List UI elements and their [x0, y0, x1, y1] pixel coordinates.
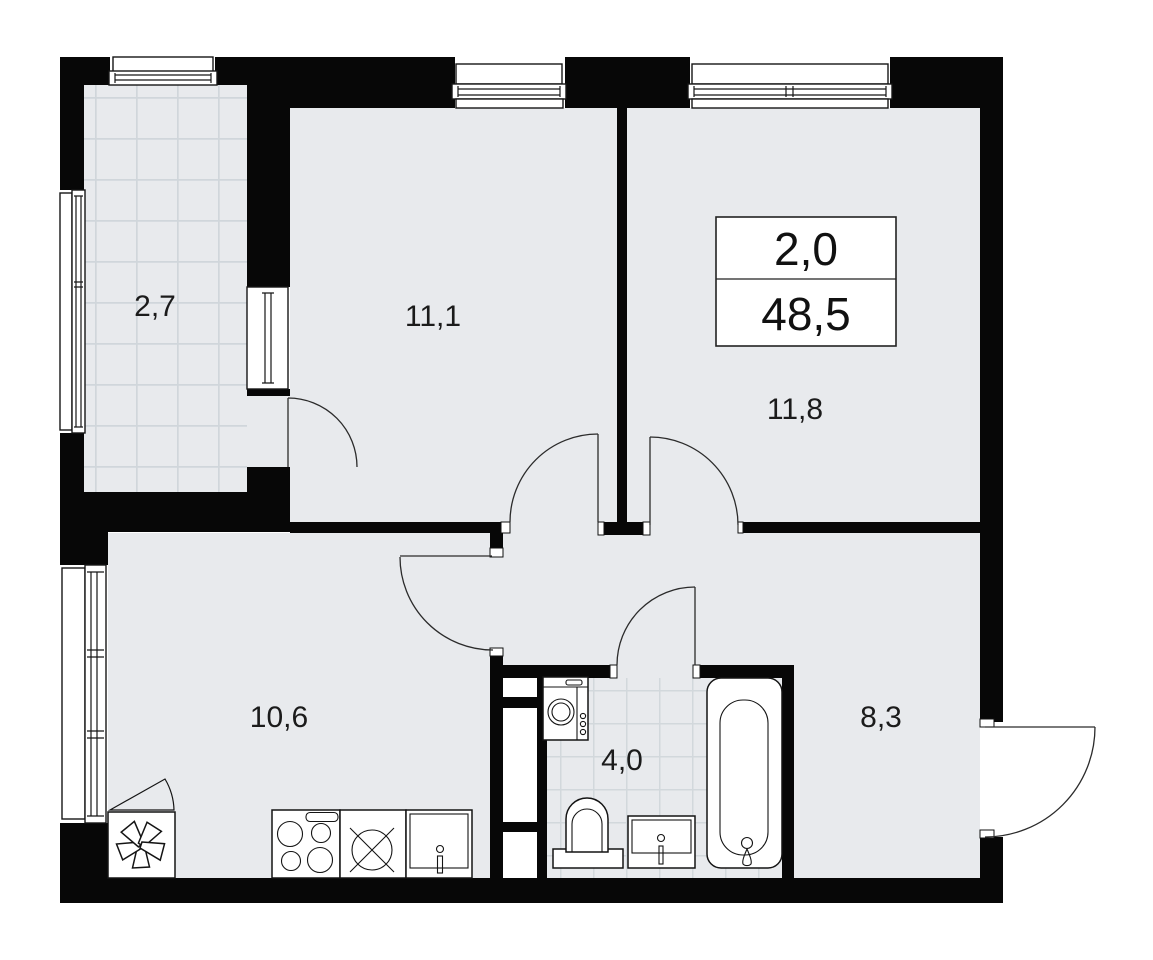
- living-area-label: 11,8: [767, 393, 823, 426]
- doorway-gap: [490, 557, 503, 648]
- wall-segment: [247, 389, 290, 396]
- balcony-top-window: [109, 57, 217, 85]
- balcony-side-window: [60, 190, 85, 433]
- door-stop: [693, 665, 700, 678]
- wall-segment: [617, 108, 627, 522]
- info-box: 2,0 48,5: [716, 217, 896, 346]
- wall-segment: [700, 665, 794, 678]
- entrance-door: [985, 727, 1095, 837]
- living-window: [688, 64, 892, 108]
- wall-segment: [503, 665, 610, 678]
- wall-segment: [215, 57, 247, 85]
- bedroom-area-label: 11,1: [405, 300, 461, 333]
- doorway-gap: [510, 522, 598, 533]
- hallway-area-label: 8,3: [860, 701, 902, 734]
- washing-machine: [543, 677, 588, 740]
- wall-segment: [743, 522, 980, 533]
- balcony-tile-hatch: [84, 85, 247, 492]
- balcony-interior-window: [247, 287, 288, 389]
- kitchen-sink-unit: [406, 810, 472, 878]
- stove: [272, 810, 340, 878]
- door-stop: [738, 522, 743, 533]
- bathtub: [707, 678, 782, 868]
- wall-segment: [60, 57, 84, 190]
- doorway-gap: [247, 396, 290, 467]
- wall-segment: [604, 522, 643, 535]
- wall-segment: [980, 57, 1003, 722]
- total-area-value: 48,5: [761, 288, 851, 340]
- kitchen-sink-round: [340, 810, 406, 878]
- hallway-floor-top: [500, 533, 980, 665]
- wall-segment: [290, 522, 501, 533]
- bathroom-sink: [628, 816, 695, 868]
- shaft-rung: [503, 697, 537, 708]
- door-stop: [643, 522, 650, 535]
- door-stop: [598, 522, 604, 535]
- door-stop: [490, 648, 503, 656]
- wall-segment: [490, 533, 503, 548]
- floor-plan-svg: 2,7 11,1 11,8 10,6 4,0 8,3 2,0 48,5: [0, 0, 1153, 960]
- wall-segment: [782, 665, 794, 878]
- bedroom-window: [452, 64, 566, 108]
- kitchen-area-label: 10,6: [250, 701, 308, 734]
- wall-segment: [60, 433, 84, 492]
- balcony-area-label: 2,7: [134, 290, 176, 323]
- door-stop: [501, 522, 510, 533]
- wall-segment: [60, 878, 1003, 903]
- shaft-rung: [503, 822, 537, 832]
- bathroom-area-label: 4,0: [601, 744, 643, 777]
- wall-segment: [84, 492, 290, 532]
- wall-segment: [247, 108, 290, 287]
- door-stop: [980, 719, 994, 727]
- rooms-count-value: 2,0: [774, 223, 838, 275]
- floor-plan-page: 2,7 11,1 11,8 10,6 4,0 8,3 2,0 48,5: [0, 0, 1153, 960]
- kitchen-window: [62, 565, 106, 823]
- floors: [84, 85, 980, 878]
- wall-segment: [247, 57, 455, 108]
- wall-segment: [490, 656, 503, 902]
- wall-segment: [565, 57, 690, 108]
- hallway-floor-right: [794, 665, 980, 878]
- door-stop: [610, 665, 617, 678]
- doorway-gap: [617, 665, 693, 678]
- doorway-gap: [650, 522, 738, 533]
